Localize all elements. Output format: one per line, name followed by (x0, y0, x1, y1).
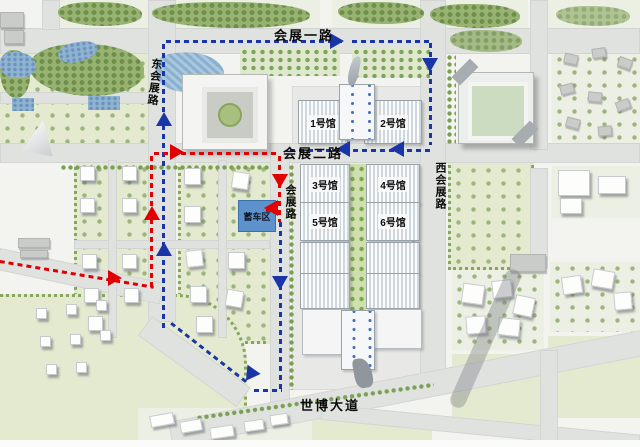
building (184, 168, 201, 185)
building (598, 125, 613, 136)
red-route-segment (150, 156, 153, 288)
site-plan-map: 1号馆 2号馆 3号馆 4号馆 5号馆 6号馆 蓄车区 (0, 0, 640, 447)
blue-route-segment (352, 40, 432, 43)
building (100, 330, 111, 341)
building (80, 198, 95, 213)
north-entrance-hall (339, 84, 375, 140)
hall-2-label: 2号馆 (378, 115, 408, 130)
pool (88, 96, 120, 110)
street (74, 240, 270, 249)
arrow-down-icon (422, 58, 438, 72)
hall-3: 3号馆 (300, 164, 350, 204)
building (96, 300, 107, 311)
conference-center-courtyard (202, 87, 258, 143)
road-label-shibo-dadao: 世博大道 (300, 395, 360, 414)
building (88, 316, 103, 331)
building (82, 254, 97, 269)
tree-rows (240, 48, 340, 76)
building (598, 176, 626, 194)
building (122, 166, 137, 181)
building (80, 166, 95, 181)
exhibition-hall (366, 273, 420, 309)
arrow-left-icon (390, 141, 404, 157)
street (540, 350, 558, 447)
building (76, 362, 87, 373)
building (231, 171, 250, 190)
blue-route-segment (279, 222, 282, 392)
building (512, 294, 536, 318)
road-right-south (530, 168, 548, 268)
building (591, 47, 606, 59)
road-label-huizhan-er-lu: 会展二路 (283, 143, 343, 162)
building (558, 170, 590, 196)
exhibition-building (370, 309, 422, 349)
pool (12, 98, 34, 111)
building (18, 238, 50, 248)
building (613, 291, 633, 311)
blue-route-segment (162, 44, 165, 330)
arrow-left-icon (264, 200, 278, 216)
building (461, 283, 486, 306)
building (20, 250, 48, 258)
building (40, 336, 51, 347)
courtyard-garden-circle (218, 103, 242, 127)
building (70, 334, 81, 345)
tree-rows (352, 48, 430, 78)
blue-route-segment (254, 389, 282, 392)
building (122, 254, 137, 269)
page-margin (0, 440, 640, 447)
building (560, 198, 582, 214)
park-block (448, 148, 534, 270)
arrow-up-icon (144, 206, 160, 220)
building (561, 275, 583, 296)
road-label-huizhan-lu: 会展路 (282, 184, 298, 220)
building (66, 304, 77, 315)
arrow-down-icon (272, 276, 288, 290)
building (588, 91, 603, 102)
tree-line (446, 54, 456, 146)
exhibition-hall (300, 242, 350, 274)
building (228, 252, 245, 269)
exhibition-hall (366, 242, 420, 274)
central-green-corridor (348, 164, 366, 312)
hall-4-label: 4号馆 (378, 177, 408, 192)
building (124, 288, 139, 303)
building (0, 12, 24, 28)
hall-5: 5号馆 (300, 202, 350, 241)
exhibition-hall (300, 273, 350, 309)
arrow-right-icon (170, 144, 184, 160)
pond (0, 52, 36, 78)
building (225, 289, 245, 309)
hall-6: 6号馆 (366, 202, 420, 241)
arrow-up-icon (156, 242, 172, 256)
street (218, 160, 227, 338)
hall-6-label: 6号馆 (378, 214, 408, 229)
building (4, 30, 24, 44)
arrow-up-icon (156, 112, 172, 126)
hall-4: 4号馆 (366, 164, 420, 204)
hall-3-label: 3号馆 (310, 177, 340, 192)
building (184, 206, 201, 223)
red-route-segment (278, 156, 281, 222)
street (108, 160, 117, 338)
building (36, 308, 47, 319)
building (591, 268, 616, 290)
building (190, 286, 207, 303)
hall-1-label: 1号馆 (308, 115, 338, 130)
hall-5-label: 5号馆 (310, 214, 340, 229)
building (122, 198, 137, 213)
street (42, 0, 60, 30)
building (46, 364, 57, 375)
building (185, 249, 204, 268)
road-label-xi-huizhan-lu: 西会展路 (432, 162, 448, 210)
road-label-huizhan-yi-lu: 会展一路 (274, 25, 334, 44)
arrow-right-icon (108, 270, 122, 286)
building (196, 316, 213, 333)
